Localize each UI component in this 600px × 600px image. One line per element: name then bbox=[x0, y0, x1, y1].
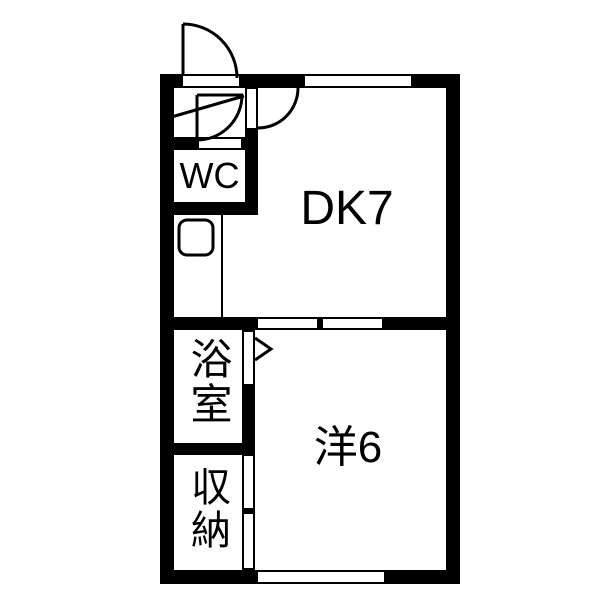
hall-dk-door-swing-icon bbox=[258, 88, 298, 128]
label-storage: 収納 bbox=[187, 466, 227, 552]
label-bathroom: 浴室 bbox=[187, 337, 229, 427]
sink-icon bbox=[179, 220, 213, 255]
plan-linework bbox=[0, 0, 600, 600]
label-dining-kitchen: DK7 bbox=[262, 185, 432, 233]
label-western-room: 洋6 bbox=[263, 426, 433, 470]
entrance-door-swing-icon bbox=[183, 24, 237, 78]
label-toilet: WC bbox=[174, 158, 245, 194]
bathroom-door-chevron-icon bbox=[255, 338, 271, 360]
entrance-step-line bbox=[168, 96, 244, 118]
floor-plan: WC DK7 洋6 浴室 収納 bbox=[0, 0, 600, 600]
